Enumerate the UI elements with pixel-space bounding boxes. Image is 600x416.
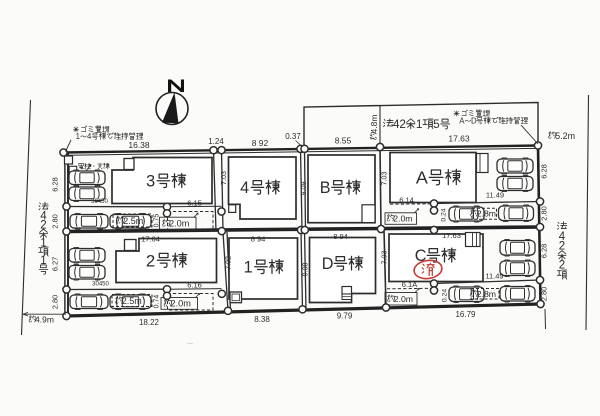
svg-text:D: D: [322, 255, 334, 273]
svg-text:16.79: 16.79: [455, 310, 476, 319]
svg-text:0.24: 0.24: [442, 289, 449, 302]
svg-text:3: 3: [146, 173, 155, 191]
svg-text:7.03: 7.03: [380, 172, 389, 186]
svg-text:2.5m: 2.5m: [123, 216, 143, 226]
svg-text:0.75: 0.75: [154, 214, 161, 228]
svg-text:2.8m: 2.8m: [477, 289, 496, 299]
svg-text:16.38: 16.38: [128, 140, 150, 150]
svg-text:8 94: 8 94: [251, 235, 266, 244]
svg-text:2.5m: 2.5m: [122, 296, 142, 306]
svg-text:...: ...: [187, 339, 193, 346]
svg-text:30450: 30450: [91, 199, 108, 205]
svg-text:1: 1: [40, 255, 46, 267]
svg-text:7.03: 7.03: [219, 171, 228, 185]
svg-text:5.2m: 5.2m: [555, 131, 575, 141]
svg-text:18.22: 18.22: [139, 318, 160, 327]
svg-text:6.28: 6.28: [540, 244, 549, 259]
svg-text:4.8m: 4.8m: [369, 115, 379, 134]
svg-text:2: 2: [146, 251, 155, 270]
svg-text:6.27: 6.27: [51, 257, 60, 272]
svg-text:8.38: 8.38: [254, 315, 270, 324]
svg-text:17.63: 17.63: [448, 134, 470, 144]
svg-text:0.24: 0.24: [441, 208, 448, 221]
svg-text:7.02: 7.02: [224, 256, 233, 270]
svg-text:11.49: 11.49: [486, 191, 504, 200]
svg-text:9.08: 9.08: [301, 263, 310, 277]
svg-text:0.74: 0.74: [154, 295, 161, 309]
svg-text:17.64: 17.64: [141, 234, 160, 243]
svg-text:2.80: 2.80: [540, 206, 549, 221]
svg-text:A: A: [416, 168, 428, 188]
svg-text:2.0m: 2.0m: [170, 299, 191, 309]
svg-text:2.0m: 2.0m: [169, 219, 190, 229]
svg-text:1: 1: [76, 132, 80, 141]
svg-text:8 92: 8 92: [252, 138, 269, 148]
svg-text:6.28: 6.28: [540, 164, 549, 179]
svg-text:17.63: 17.63: [442, 231, 461, 240]
svg-text:0.37: 0.37: [285, 132, 301, 141]
svg-text:6.28: 6.28: [51, 177, 60, 192]
svg-text:2.80: 2.80: [51, 295, 60, 310]
svg-text:4: 4: [240, 179, 249, 197]
svg-text:D: D: [471, 116, 477, 125]
svg-text:2.0m: 2.0m: [393, 213, 412, 223]
svg-text:1.24: 1.24: [208, 137, 224, 146]
svg-text:8.55: 8.55: [335, 136, 352, 146]
svg-text:7.03: 7.03: [380, 251, 389, 265]
svg-text:4: 4: [87, 132, 92, 141]
svg-text:6.15: 6.15: [187, 198, 202, 207]
svg-text:B: B: [320, 179, 331, 197]
svg-text:8 94: 8 94: [333, 232, 348, 241]
svg-text:2.0m: 2.0m: [394, 294, 413, 304]
svg-text:A: A: [459, 116, 465, 125]
svg-text:5: 5: [433, 117, 440, 131]
svg-text:2: 2: [40, 220, 46, 232]
svg-text:6.1A: 6.1A: [402, 280, 417, 289]
svg-text:1: 1: [416, 117, 423, 131]
svg-text:1: 1: [244, 259, 253, 277]
svg-text:4.9m: 4.9m: [35, 315, 54, 325]
svg-text:6.16: 6.16: [187, 281, 202, 290]
svg-text:9.09: 9.09: [299, 182, 308, 196]
svg-text:2.80: 2.80: [51, 214, 60, 229]
svg-text:11.49: 11.49: [485, 272, 503, 281]
svg-text:9.79: 9.79: [337, 312, 353, 321]
svg-text:30450: 30450: [92, 282, 109, 288]
svg-text:42: 42: [393, 117, 406, 131]
svg-text:2.8m: 2.8m: [477, 209, 496, 219]
svg-text:2.80: 2.80: [540, 287, 549, 302]
svg-text:6.14: 6.14: [399, 195, 414, 204]
